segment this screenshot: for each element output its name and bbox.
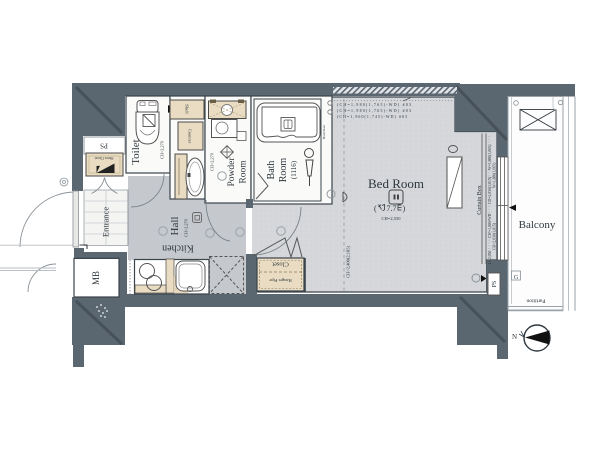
svg-text:Room: Room (278, 158, 289, 183)
svg-text:Kitchen: Kitchen (162, 243, 194, 254)
svg-text:PS: PS (492, 281, 498, 288)
svg-text:Hand Rail: Hand Rail (322, 125, 326, 139)
svg-text:Shoes Closet: Shoes Closet (95, 156, 114, 160)
svg-text:Curtain Box: Curtain Box (477, 185, 483, 215)
svg-text:Counter: Counter (188, 129, 193, 144)
svg-text:MB: MB (91, 271, 101, 285)
svg-text:(: ( (374, 204, 377, 213)
svg-text:Toilet: Toilet (130, 139, 142, 165)
svg-text:PS: PS (100, 142, 108, 150)
svg-text:Entrance: Entrance (101, 207, 111, 237)
svg-text:Room: Room (239, 160, 249, 184)
svg-text:N: N (512, 333, 517, 341)
svg-text:Closet: Closet (272, 261, 289, 268)
svg-text:Powder: Powder (227, 157, 237, 187)
svg-text:Shelf: Shelf (185, 104, 190, 114)
svg-text:Balcony: Balcony (519, 219, 556, 231)
svg-text:Partition: Partition (526, 298, 545, 304)
svg-text:): ) (403, 204, 406, 213)
svg-text:G: G (514, 275, 519, 281)
svg-text:Bath: Bath (266, 161, 277, 180)
svg-text:Hanger Pipe: Hanger Pipe (269, 278, 291, 283)
svg-text:Bed Room: Bed Room (368, 176, 424, 191)
svg-text:7.7: 7.7 (387, 204, 397, 213)
svg-text:(1116): (1116) (290, 160, 298, 179)
svg-text:Hall: Hall (169, 217, 181, 236)
